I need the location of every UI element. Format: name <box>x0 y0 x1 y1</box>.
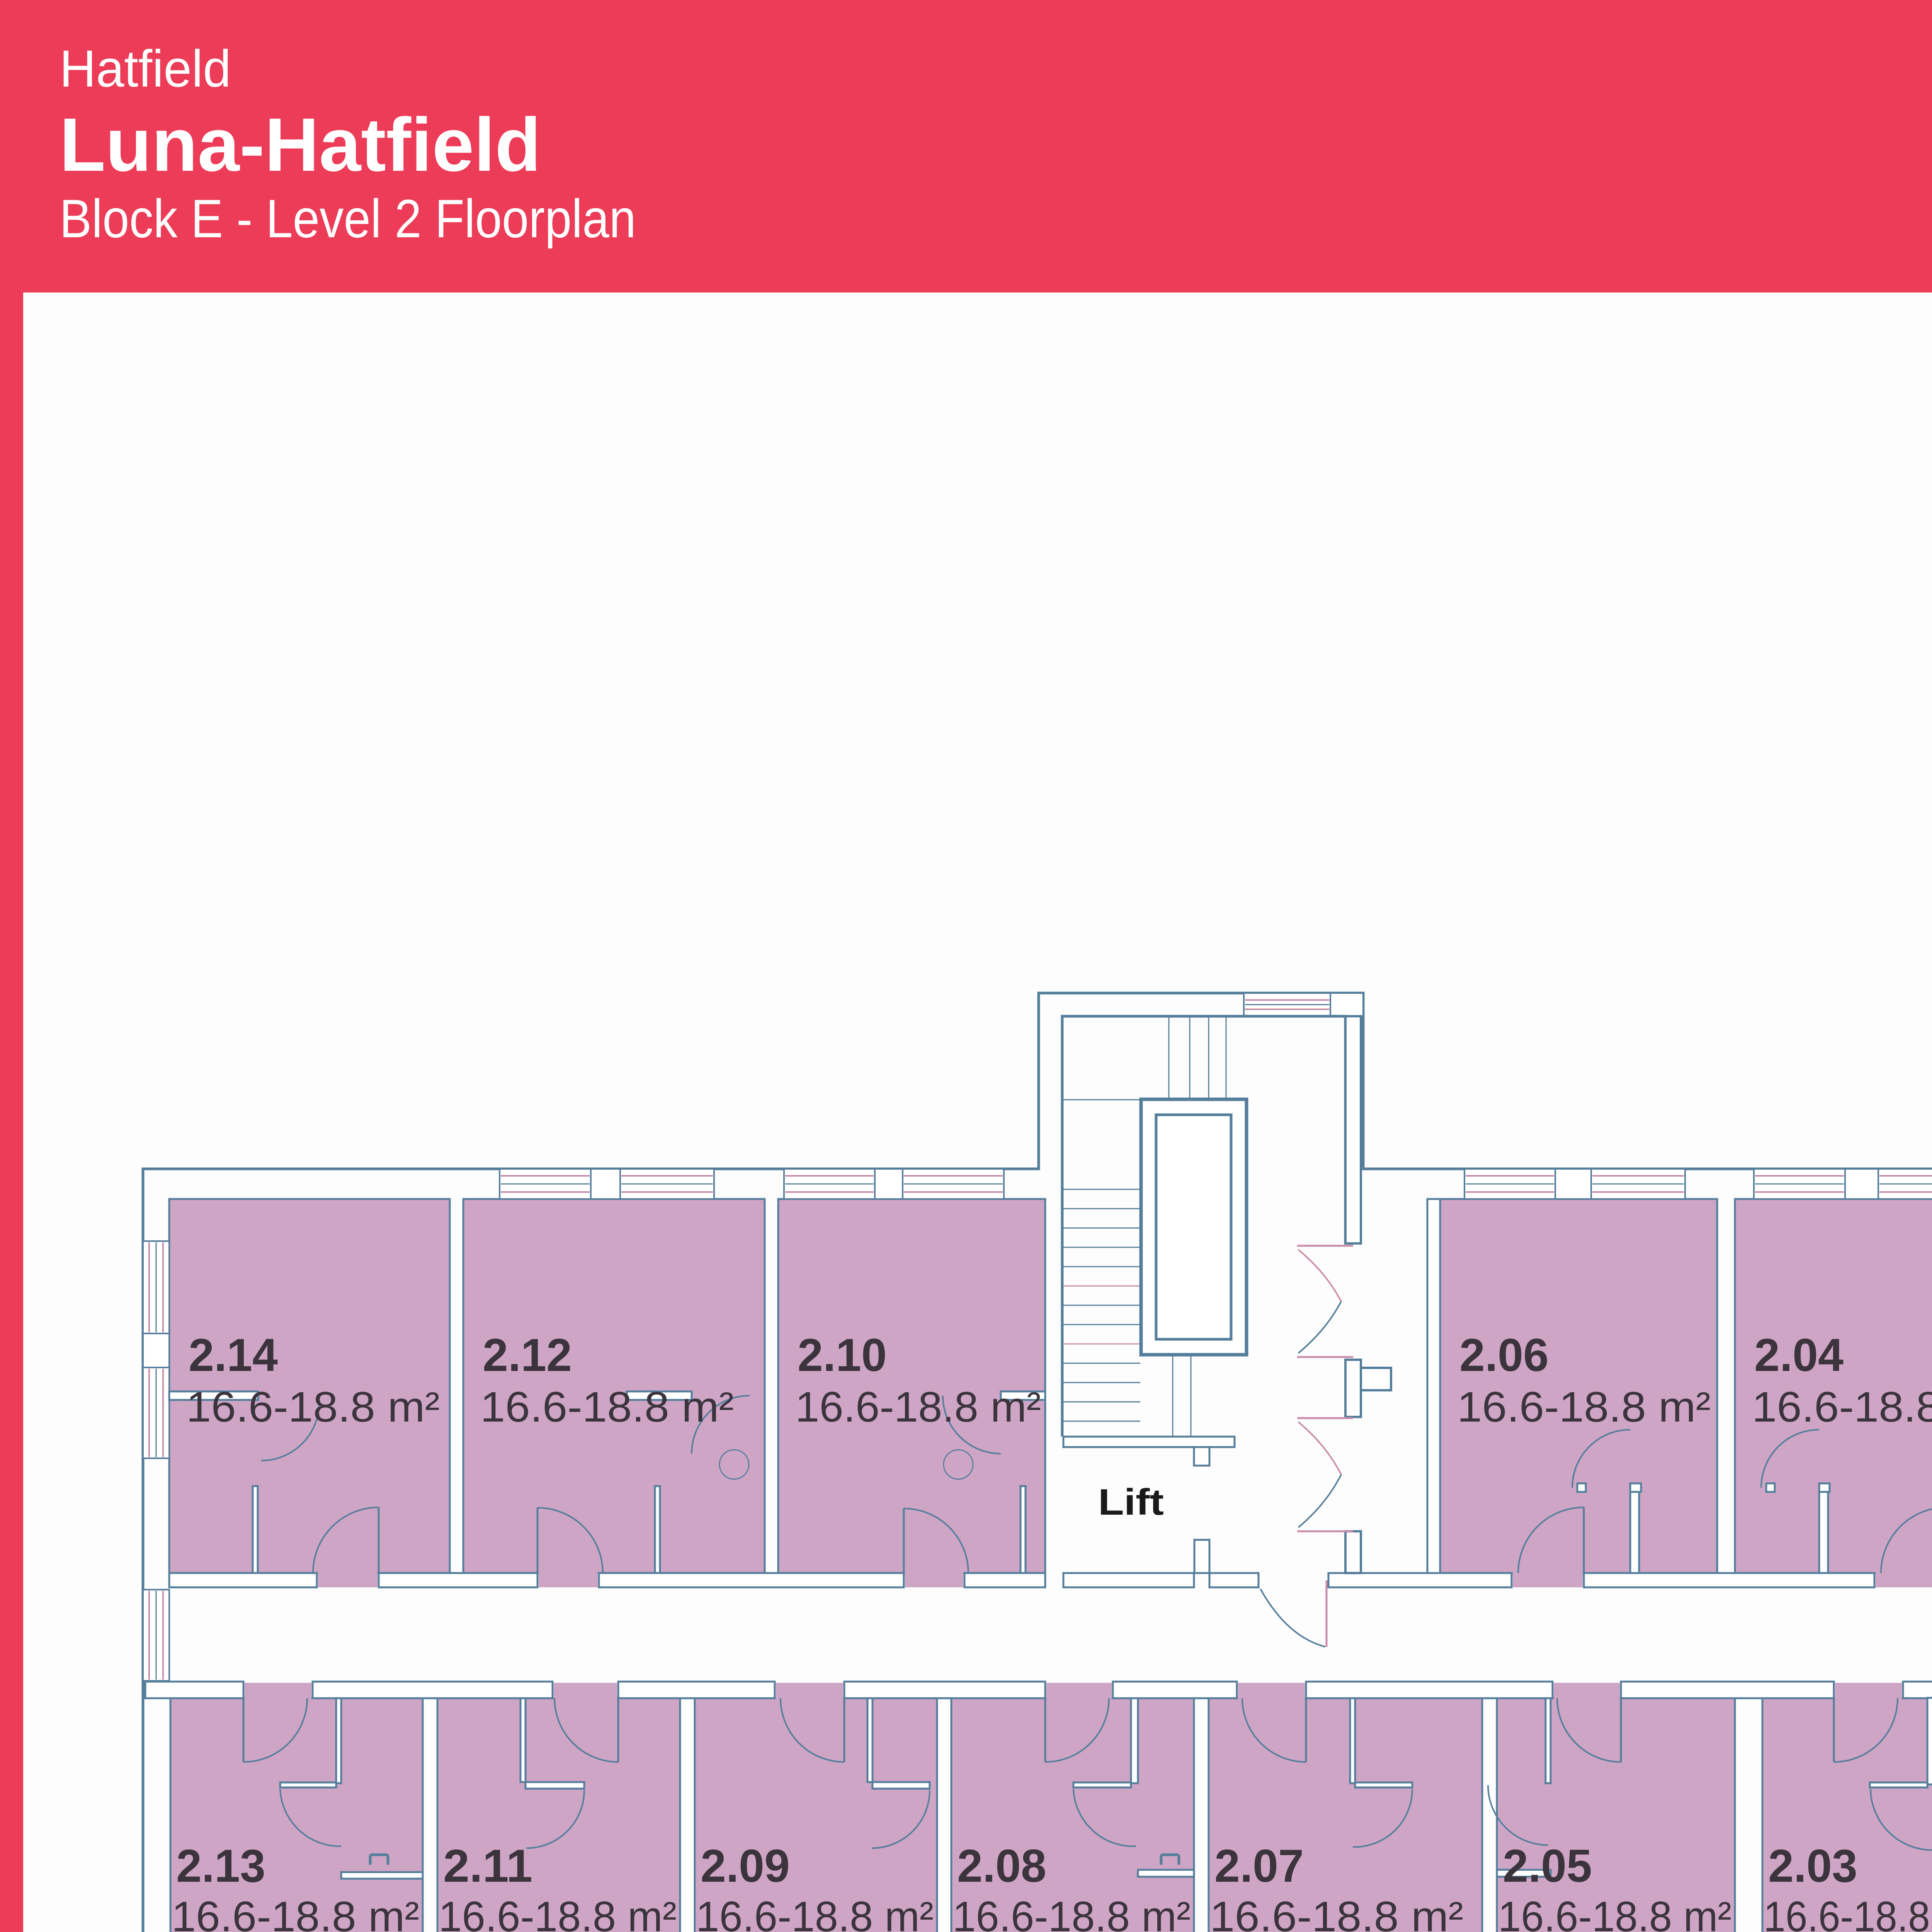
svg-text:Hatfield: Hatfield <box>60 39 231 98</box>
svg-text:16.6-18.8 m²: 16.6-18.8 m² <box>1752 1383 1932 1431</box>
svg-text:2.05: 2.05 <box>1503 1840 1592 1892</box>
svg-text:2.04: 2.04 <box>1754 1329 1844 1381</box>
svg-text:2.03: 2.03 <box>1768 1840 1857 1892</box>
svg-text:2.14: 2.14 <box>189 1329 278 1381</box>
svg-text:2.09: 2.09 <box>701 1840 790 1892</box>
svg-text:Lift: Lift <box>1098 1481 1164 1523</box>
svg-text:16.6-18.8 m²: 16.6-18.8 m² <box>186 1383 440 1431</box>
svg-text:Block E - Level 2 Floorplan: Block E - Level 2 Floorplan <box>60 188 636 249</box>
svg-text:16.6-18.8 m²: 16.6-18.8 m² <box>172 1893 419 1932</box>
svg-text:16.6-18.8 m²: 16.6-18.8 m² <box>795 1383 1041 1431</box>
svg-text:16.6-18.8 m²: 16.6-18.8 m² <box>1457 1383 1711 1431</box>
svg-text:2.12: 2.12 <box>483 1329 572 1381</box>
svg-text:16.6-18.8 m²: 16.6-18.8 m² <box>1764 1893 1932 1932</box>
svg-text:2.06: 2.06 <box>1459 1329 1549 1381</box>
svg-text:2.10: 2.10 <box>798 1329 887 1381</box>
svg-text:2.11: 2.11 <box>443 1840 532 1892</box>
svg-text:Luna-Hatfield: Luna-Hatfield <box>60 102 541 187</box>
svg-text:16.6-18.8 m²: 16.6-18.8 m² <box>696 1893 934 1932</box>
svg-text:2.07: 2.07 <box>1214 1840 1304 1892</box>
svg-text:16.6-18.8 m²: 16.6-18.8 m² <box>952 1893 1190 1932</box>
svg-text:16.6-18.8 m²: 16.6-18.8 m² <box>439 1893 677 1932</box>
svg-text:16.6-18.8 m²: 16.6-18.8 m² <box>480 1383 734 1431</box>
svg-text:2.08: 2.08 <box>957 1840 1046 1892</box>
svg-text:2.13: 2.13 <box>176 1840 265 1892</box>
svg-text:16.6-18.8 m²: 16.6-18.8 m² <box>1210 1893 1463 1932</box>
svg-text:16.6-18.8 m²: 16.6-18.8 m² <box>1498 1893 1731 1932</box>
